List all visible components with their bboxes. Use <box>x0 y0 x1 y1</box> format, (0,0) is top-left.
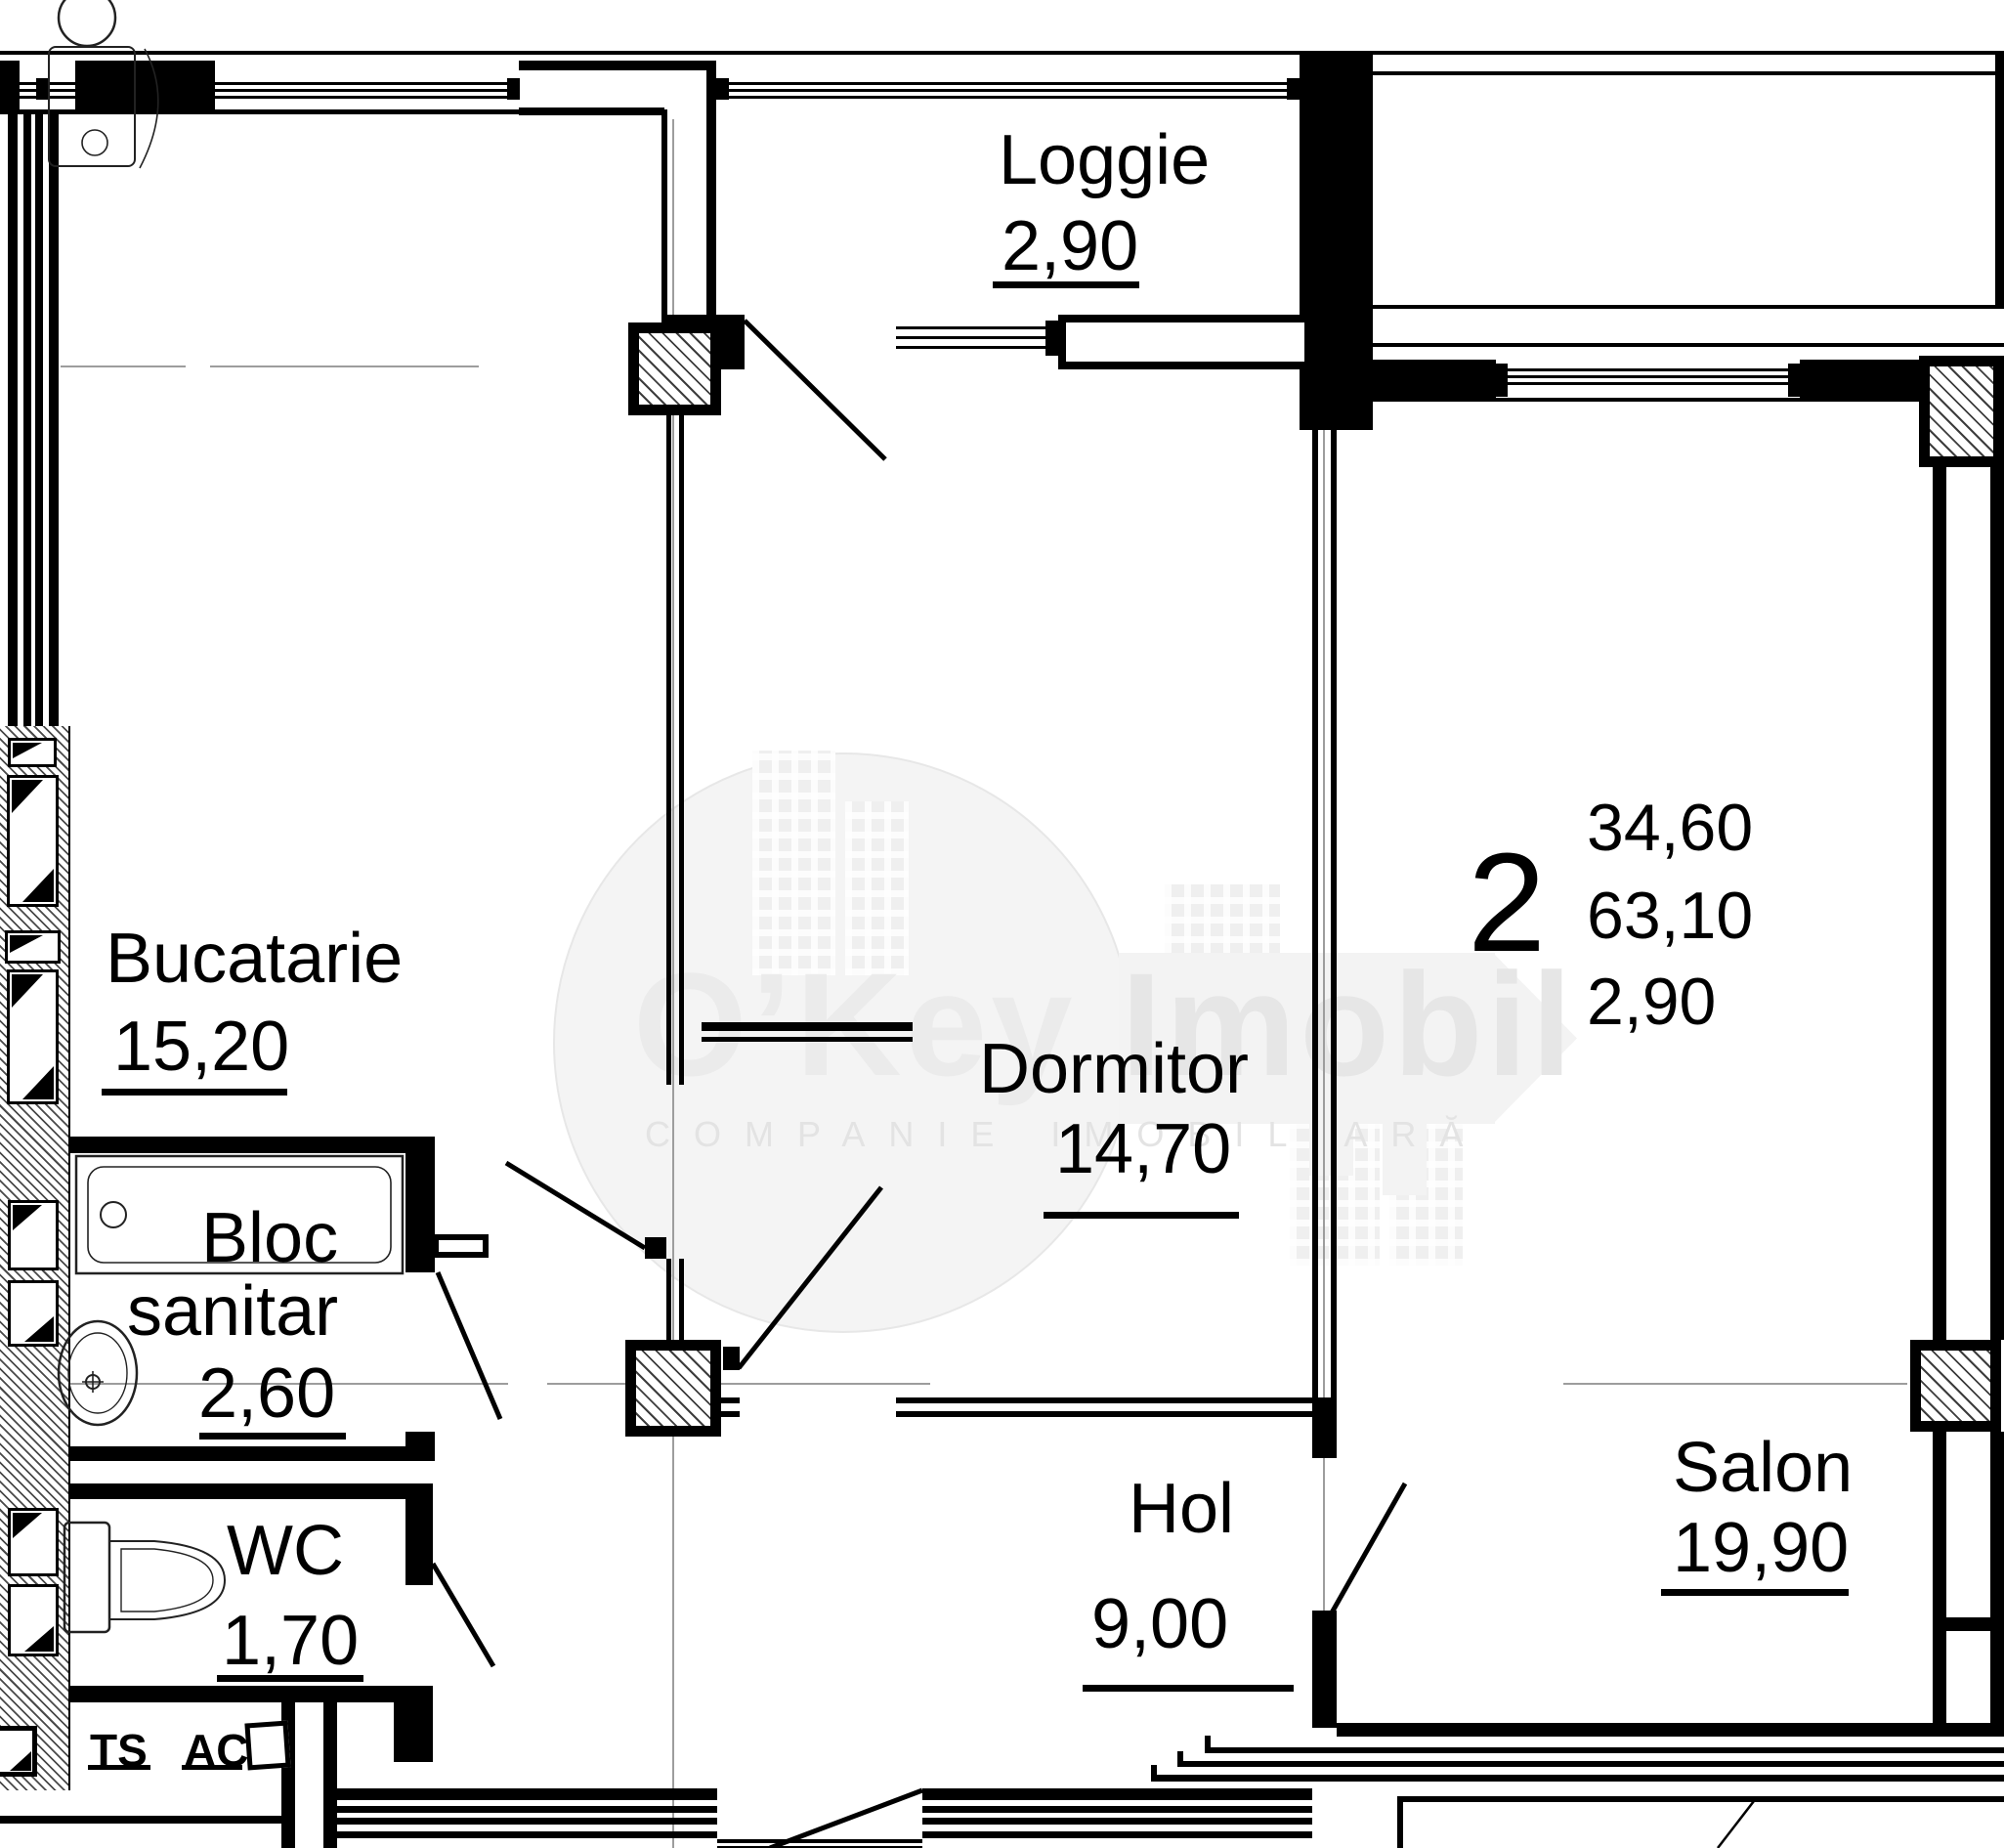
reference-line <box>210 365 479 367</box>
label-underline <box>1044 1212 1239 1219</box>
window-icon <box>8 1508 59 1576</box>
window-wedge-icon <box>12 780 43 813</box>
window-icon <box>7 969 59 1104</box>
label-underline <box>993 281 1139 288</box>
wall-segment <box>59 0 115 46</box>
wall-segment <box>23 112 31 728</box>
window-icon <box>7 775 59 907</box>
wall-segment <box>723 1347 740 1370</box>
wall-segment <box>1508 382 1788 385</box>
wall-segment <box>109 1541 225 1619</box>
wall-segment <box>1205 1747 2004 1753</box>
window-wedge-icon <box>13 1205 42 1230</box>
wall-segment <box>36 78 49 100</box>
wall-segment <box>679 1259 684 1340</box>
wall-segment <box>729 96 1287 99</box>
wall-segment <box>922 1831 1312 1838</box>
window-wedge-icon <box>13 1513 42 1538</box>
room-label-sanitar: sanitar <box>127 1276 338 1347</box>
wall-segment <box>1337 1723 2004 1737</box>
window-icon <box>8 1584 59 1656</box>
wall-segment <box>729 89 1287 92</box>
wall-segment <box>1312 1611 1337 1728</box>
wall-segment <box>896 326 1045 329</box>
wall-segment <box>0 61 20 112</box>
wall-segment <box>666 415 671 1085</box>
wall-segment <box>64 1523 109 1632</box>
wall-segment <box>405 1483 433 1585</box>
reference-line <box>547 1383 930 1385</box>
wall-segment <box>1373 343 2004 347</box>
structural-column-icon <box>628 322 721 415</box>
wall-segment <box>1331 430 1337 1397</box>
wall-segment <box>0 51 2004 55</box>
wall-segment <box>896 1411 1312 1417</box>
window-wedge-icon <box>22 1066 54 1099</box>
wall-segment <box>1397 1796 2004 1802</box>
wall-segment <box>82 130 107 155</box>
wall-segment <box>1151 1775 2004 1782</box>
wall-segment <box>1990 467 2004 1340</box>
apartment-balcony-area: 2,90 <box>1587 968 1716 1035</box>
room-label-salon: Salon <box>1673 1433 1853 1503</box>
wall-segment <box>1312 430 1318 1397</box>
window-wedge-icon <box>12 974 43 1008</box>
sink-icon <box>59 1321 137 1425</box>
structural-column-icon <box>625 1340 721 1437</box>
wall-segment <box>394 1686 433 1762</box>
wall-segment <box>1508 368 1788 371</box>
wall-segment <box>507 78 520 100</box>
wall-segment <box>721 1397 740 1403</box>
label-underline <box>1083 1685 1294 1692</box>
structural-column-icon <box>1919 356 2004 467</box>
room-area-bloc-sanitar: 2,60 <box>198 1358 335 1429</box>
wall-segment <box>1800 360 1919 401</box>
ts-shaft-icon <box>0 1726 37 1777</box>
room-area-wc: 1,70 <box>222 1606 359 1676</box>
wall-segment <box>101 1202 126 1227</box>
label-underline <box>217 1675 363 1682</box>
wall-segment <box>8 112 18 728</box>
window-icon <box>8 1280 59 1347</box>
window-icon <box>5 930 61 964</box>
wall-segment <box>896 1397 1312 1403</box>
wall-segment <box>1933 467 1946 1340</box>
wall-segment <box>1995 55 2004 309</box>
apartment-room-count: 2 <box>1468 833 1546 973</box>
wall-segment <box>1990 1432 2004 1728</box>
apartment-total-area: 63,10 <box>1587 882 1753 949</box>
wall-segment <box>0 109 519 114</box>
wall-segment <box>922 1788 1312 1800</box>
room-area-loggie: 2,90 <box>1002 211 1138 281</box>
wall-segment <box>666 1259 671 1340</box>
wall-segment <box>1788 364 1800 397</box>
wall-segment <box>1373 360 1496 401</box>
wall-segment <box>1933 1432 1946 1728</box>
door-leaf-salon <box>1331 1483 1405 1614</box>
wall-segment <box>59 1137 435 1153</box>
wall-segment <box>1312 1397 1337 1458</box>
wall-segment <box>0 1816 281 1824</box>
wall-segment <box>717 1839 922 1843</box>
label-underline <box>199 1433 346 1440</box>
door-jamb <box>433 1234 489 1258</box>
wall-segment <box>1946 1617 1990 1631</box>
wall-segment <box>896 336 1045 339</box>
floor-plan: O’Key Imobil COMPANIE IMOBILIARĂ <box>0 0 2004 1848</box>
window-wedge-icon <box>22 869 54 902</box>
room-label-bucatarie: Bucatarie <box>106 924 403 994</box>
room-label-hol: Hol <box>1129 1474 1234 1544</box>
room-label-loggie: Loggie <box>999 125 1210 195</box>
wall-segment <box>75 61 215 112</box>
window-wedge-icon <box>10 1751 31 1771</box>
ac-unit-icon <box>244 1721 290 1771</box>
wall-segment <box>35 112 43 728</box>
wall-segment <box>702 1022 913 1031</box>
wall-segment <box>49 112 59 728</box>
wall-segment <box>1373 398 1919 402</box>
wall-segment <box>1508 375 1788 378</box>
wall-segment <box>1287 78 1300 100</box>
wall-segment <box>679 415 684 1085</box>
wall-segment <box>1305 305 2004 309</box>
wall-segment <box>729 82 1287 85</box>
wall-segment <box>1373 71 2004 75</box>
structural-column-icon <box>1910 1340 2001 1432</box>
wall-segment <box>337 1788 717 1800</box>
wall-segment <box>86 1375 100 1389</box>
wall-segment <box>519 107 664 115</box>
room-area-bucatarie: 15,20 <box>113 1011 289 1082</box>
window-wedge-icon <box>10 935 43 953</box>
wall-segment <box>1177 1751 1183 1765</box>
wall-segment <box>519 61 716 70</box>
wall-segment <box>896 346 1045 349</box>
label-underline <box>102 1089 287 1096</box>
wall-segment <box>1045 321 1058 356</box>
wall-segment <box>82 1371 104 1393</box>
window-icon <box>8 1200 59 1270</box>
wall-segment <box>922 1806 1312 1813</box>
wall-segment <box>59 1483 433 1499</box>
window-wedge-icon <box>24 1316 54 1342</box>
wall-with-core <box>1058 315 1312 369</box>
wall-segment <box>1397 1796 1403 1848</box>
wall-segment <box>922 1818 1312 1825</box>
wall-segment <box>68 1333 127 1413</box>
room-area-dormitor: 14,70 <box>1055 1114 1231 1184</box>
apartment-living-area: 34,60 <box>1587 795 1753 861</box>
door-leaf-balcony <box>745 321 885 459</box>
wall-segment <box>121 1549 213 1612</box>
wall-segment <box>59 1686 394 1702</box>
room-label-wc: WC <box>227 1516 344 1586</box>
wall-segment <box>337 1831 717 1838</box>
room-label-dormitor: Dormitor <box>979 1034 1249 1104</box>
room-area-salon: 19,90 <box>1673 1513 1849 1583</box>
label-underline <box>182 1765 242 1770</box>
reference-line <box>1563 1383 1907 1385</box>
toilet-icon <box>64 1523 225 1632</box>
wall-segment <box>1300 54 1373 430</box>
wall-segment <box>59 1446 435 1461</box>
wall-segment <box>405 1153 435 1272</box>
door-leaf-bathroom <box>438 1272 500 1419</box>
window-wedge-icon <box>24 1626 54 1652</box>
wall-segment <box>59 1321 137 1425</box>
wall-segment <box>706 61 716 322</box>
door-leaf-wc <box>433 1564 493 1666</box>
window-wedge-icon <box>13 743 42 758</box>
reference-line <box>61 365 186 367</box>
wall-segment <box>337 1818 717 1825</box>
wall-segment <box>702 1037 913 1042</box>
room-label-bloc: Bloc <box>201 1203 338 1273</box>
label-underline <box>88 1765 150 1770</box>
reference-line <box>1323 311 1325 1728</box>
wall-segment <box>1496 364 1508 397</box>
window-icon <box>8 738 57 767</box>
wall-segment <box>323 1702 337 1848</box>
label-underline <box>1661 1589 1849 1596</box>
wall-segment <box>721 1411 740 1417</box>
wall-segment <box>1177 1761 2004 1767</box>
wall-segment <box>716 78 729 100</box>
wall-segment <box>1151 1765 1157 1779</box>
wall-segment <box>337 1806 717 1813</box>
wall-segment <box>661 109 667 322</box>
corner-hatch-line <box>1718 1801 1754 1848</box>
wall-segment <box>645 1237 666 1259</box>
room-area-hol: 9,00 <box>1091 1589 1228 1659</box>
wall-segment <box>1205 1736 1211 1753</box>
